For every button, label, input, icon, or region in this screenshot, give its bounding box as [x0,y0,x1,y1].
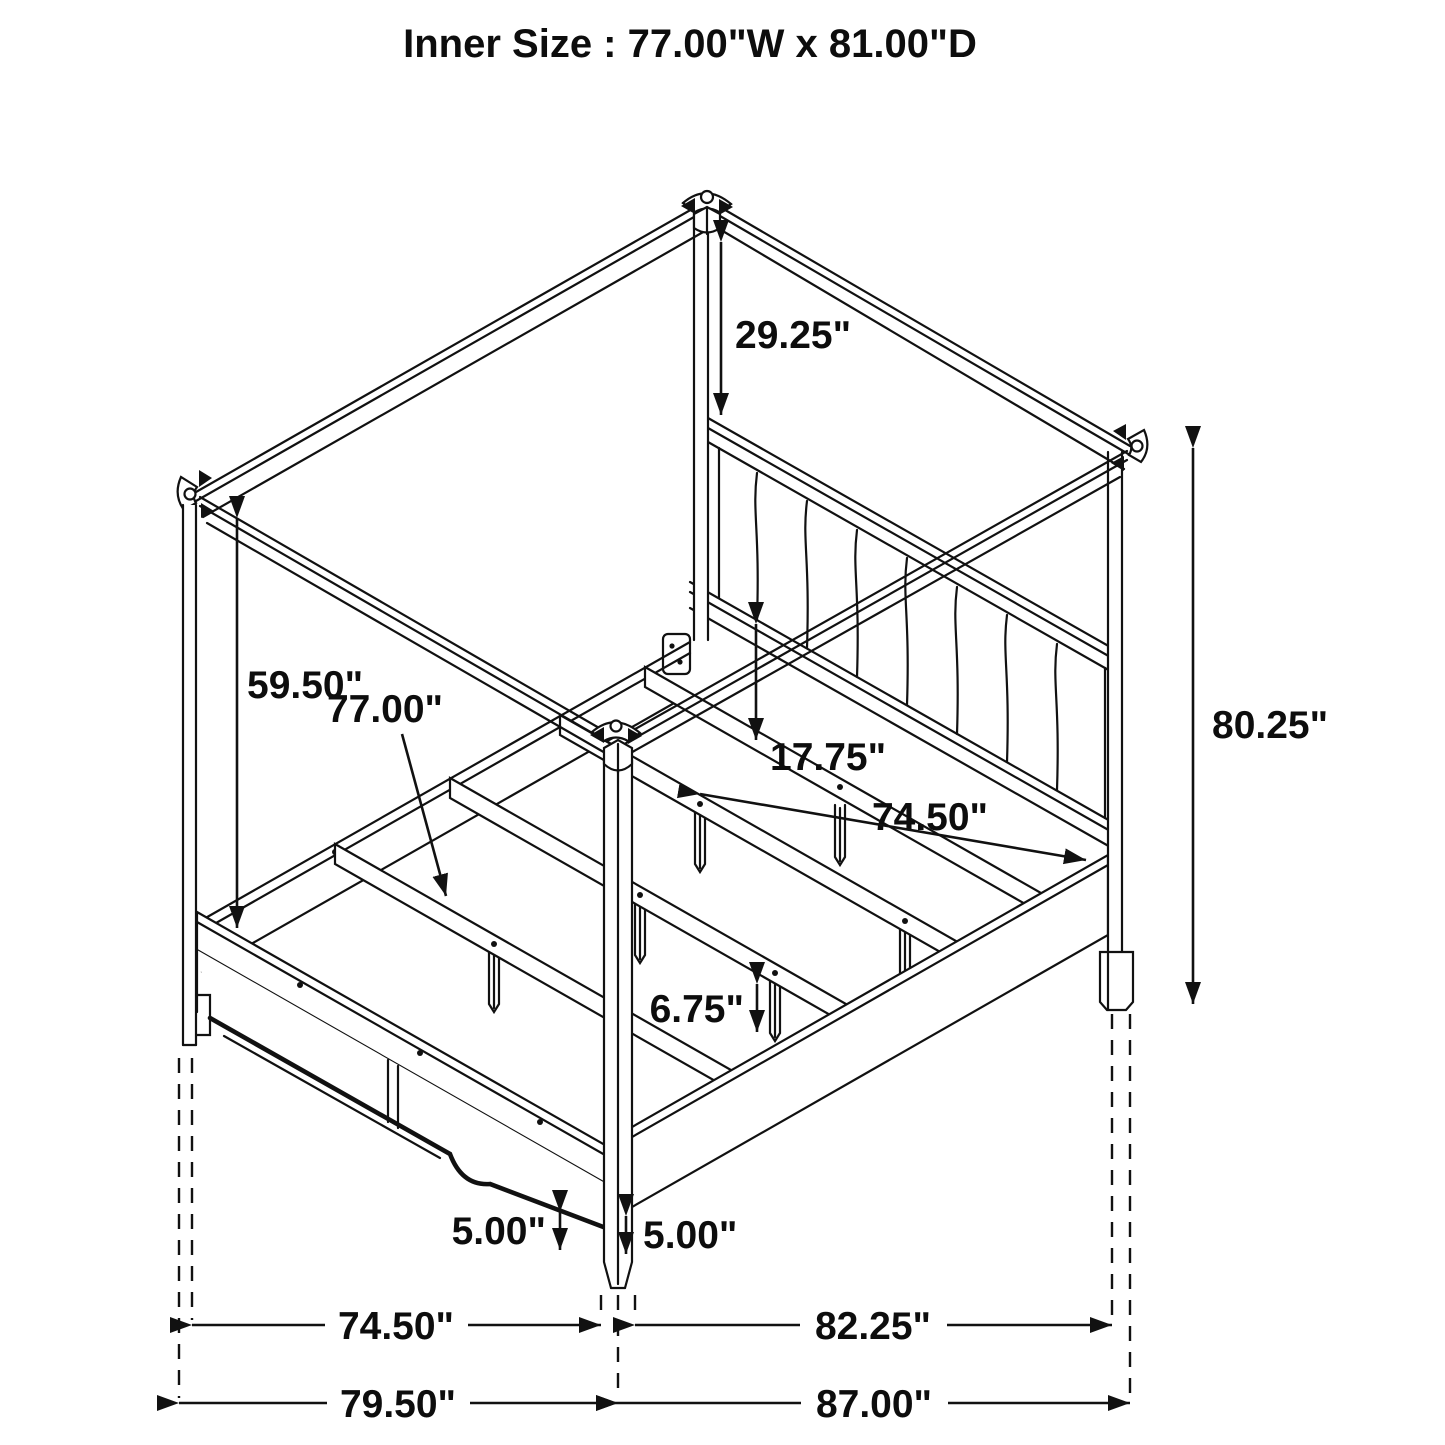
dim-label-depth-outer: 87.00" [816,1383,932,1426]
foot-rail [197,912,612,1187]
page-title: Inner Size : 77.00"W x 81.00"D [403,22,977,66]
support-leg [635,903,645,963]
support-leg [770,981,780,1041]
dim-leader-77-00 [402,734,446,896]
dim-label-depth-inner: 82.25" [815,1305,931,1348]
dim-label-slat-length: 77.00" [327,688,443,731]
dim-label-rail-height: 17.75" [770,736,886,779]
dim-label-width-outer: 79.50" [340,1383,456,1426]
canopy-bed-dimension-drawing: 29.25" 59.50" 77.00" 17.75" 74.50" 80.25… [0,0,1445,1445]
support-leg [489,952,499,1012]
headboard [690,418,1112,848]
slat [450,778,846,1024]
dim-label-leg-height: 6.75" [650,988,744,1031]
footboard [197,950,612,1230]
back-post [694,212,708,642]
canopy-corner-back [681,191,733,234]
dim-label-post-height: 80.25" [1212,704,1328,747]
dim-label-headboard-post-gap: 29.25" [735,314,851,357]
diagram-page: 29.25" 59.50" 77.00" 17.75" 74.50" 80.25… [0,0,1445,1445]
front-post [603,740,633,1289]
dim-label-width-inner: 74.50" [338,1305,454,1348]
dim-label-clearance-right: 5.00" [643,1214,737,1257]
dim-label-clearance-left: 5.00" [452,1210,546,1253]
support-leg [835,805,845,865]
support-leg [695,812,705,872]
